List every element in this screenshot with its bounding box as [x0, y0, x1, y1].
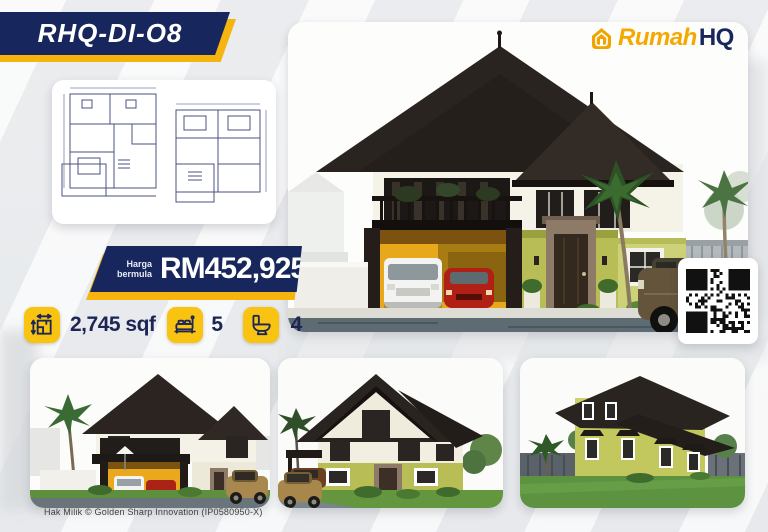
floorplan-measure-icon	[24, 307, 60, 343]
thumbnail-render-right-angle	[278, 358, 503, 508]
bathrooms-value: 4	[291, 313, 302, 337]
copyright-text: Hak Milik © Golden Sharp Innovation (IP0…	[44, 507, 263, 517]
qr-code	[678, 258, 758, 344]
poster-canvas: RHQ-DI-O8 Rumah HQ	[0, 0, 768, 532]
thumbnail-render-rear-side	[520, 358, 745, 508]
area-value: 2,745 sqf	[70, 313, 155, 337]
qr-pattern	[686, 269, 750, 333]
floorplan-card	[52, 80, 276, 224]
house-monogram-icon	[588, 25, 615, 52]
price-banner: Harga bermula RM452,925	[84, 244, 306, 302]
thumbnail-render-left-angle	[30, 358, 270, 508]
price-amount: RM452,925	[160, 252, 306, 286]
model-badge: RHQ-DI-O8	[0, 10, 240, 64]
price-navy-ribbon: Harga bermula RM452,925	[90, 246, 302, 292]
specs-row: 2,745 sqf 5 4	[24, 306, 302, 344]
brand-logo: Rumah HQ	[588, 22, 734, 54]
badge-navy-ribbon: RHQ-DI-O8	[0, 12, 230, 55]
bedrooms-value: 5	[211, 313, 222, 337]
floorplan-drawing	[52, 80, 276, 224]
toilet-icon	[243, 307, 279, 343]
model-code-label: RHQ-DI-O8	[38, 18, 193, 49]
bed-icon	[167, 307, 203, 343]
price-label: Harga bermula	[117, 259, 152, 279]
brand-word-rumah: Rumah	[618, 24, 697, 52]
brand-word-hq: HQ	[699, 24, 734, 52]
